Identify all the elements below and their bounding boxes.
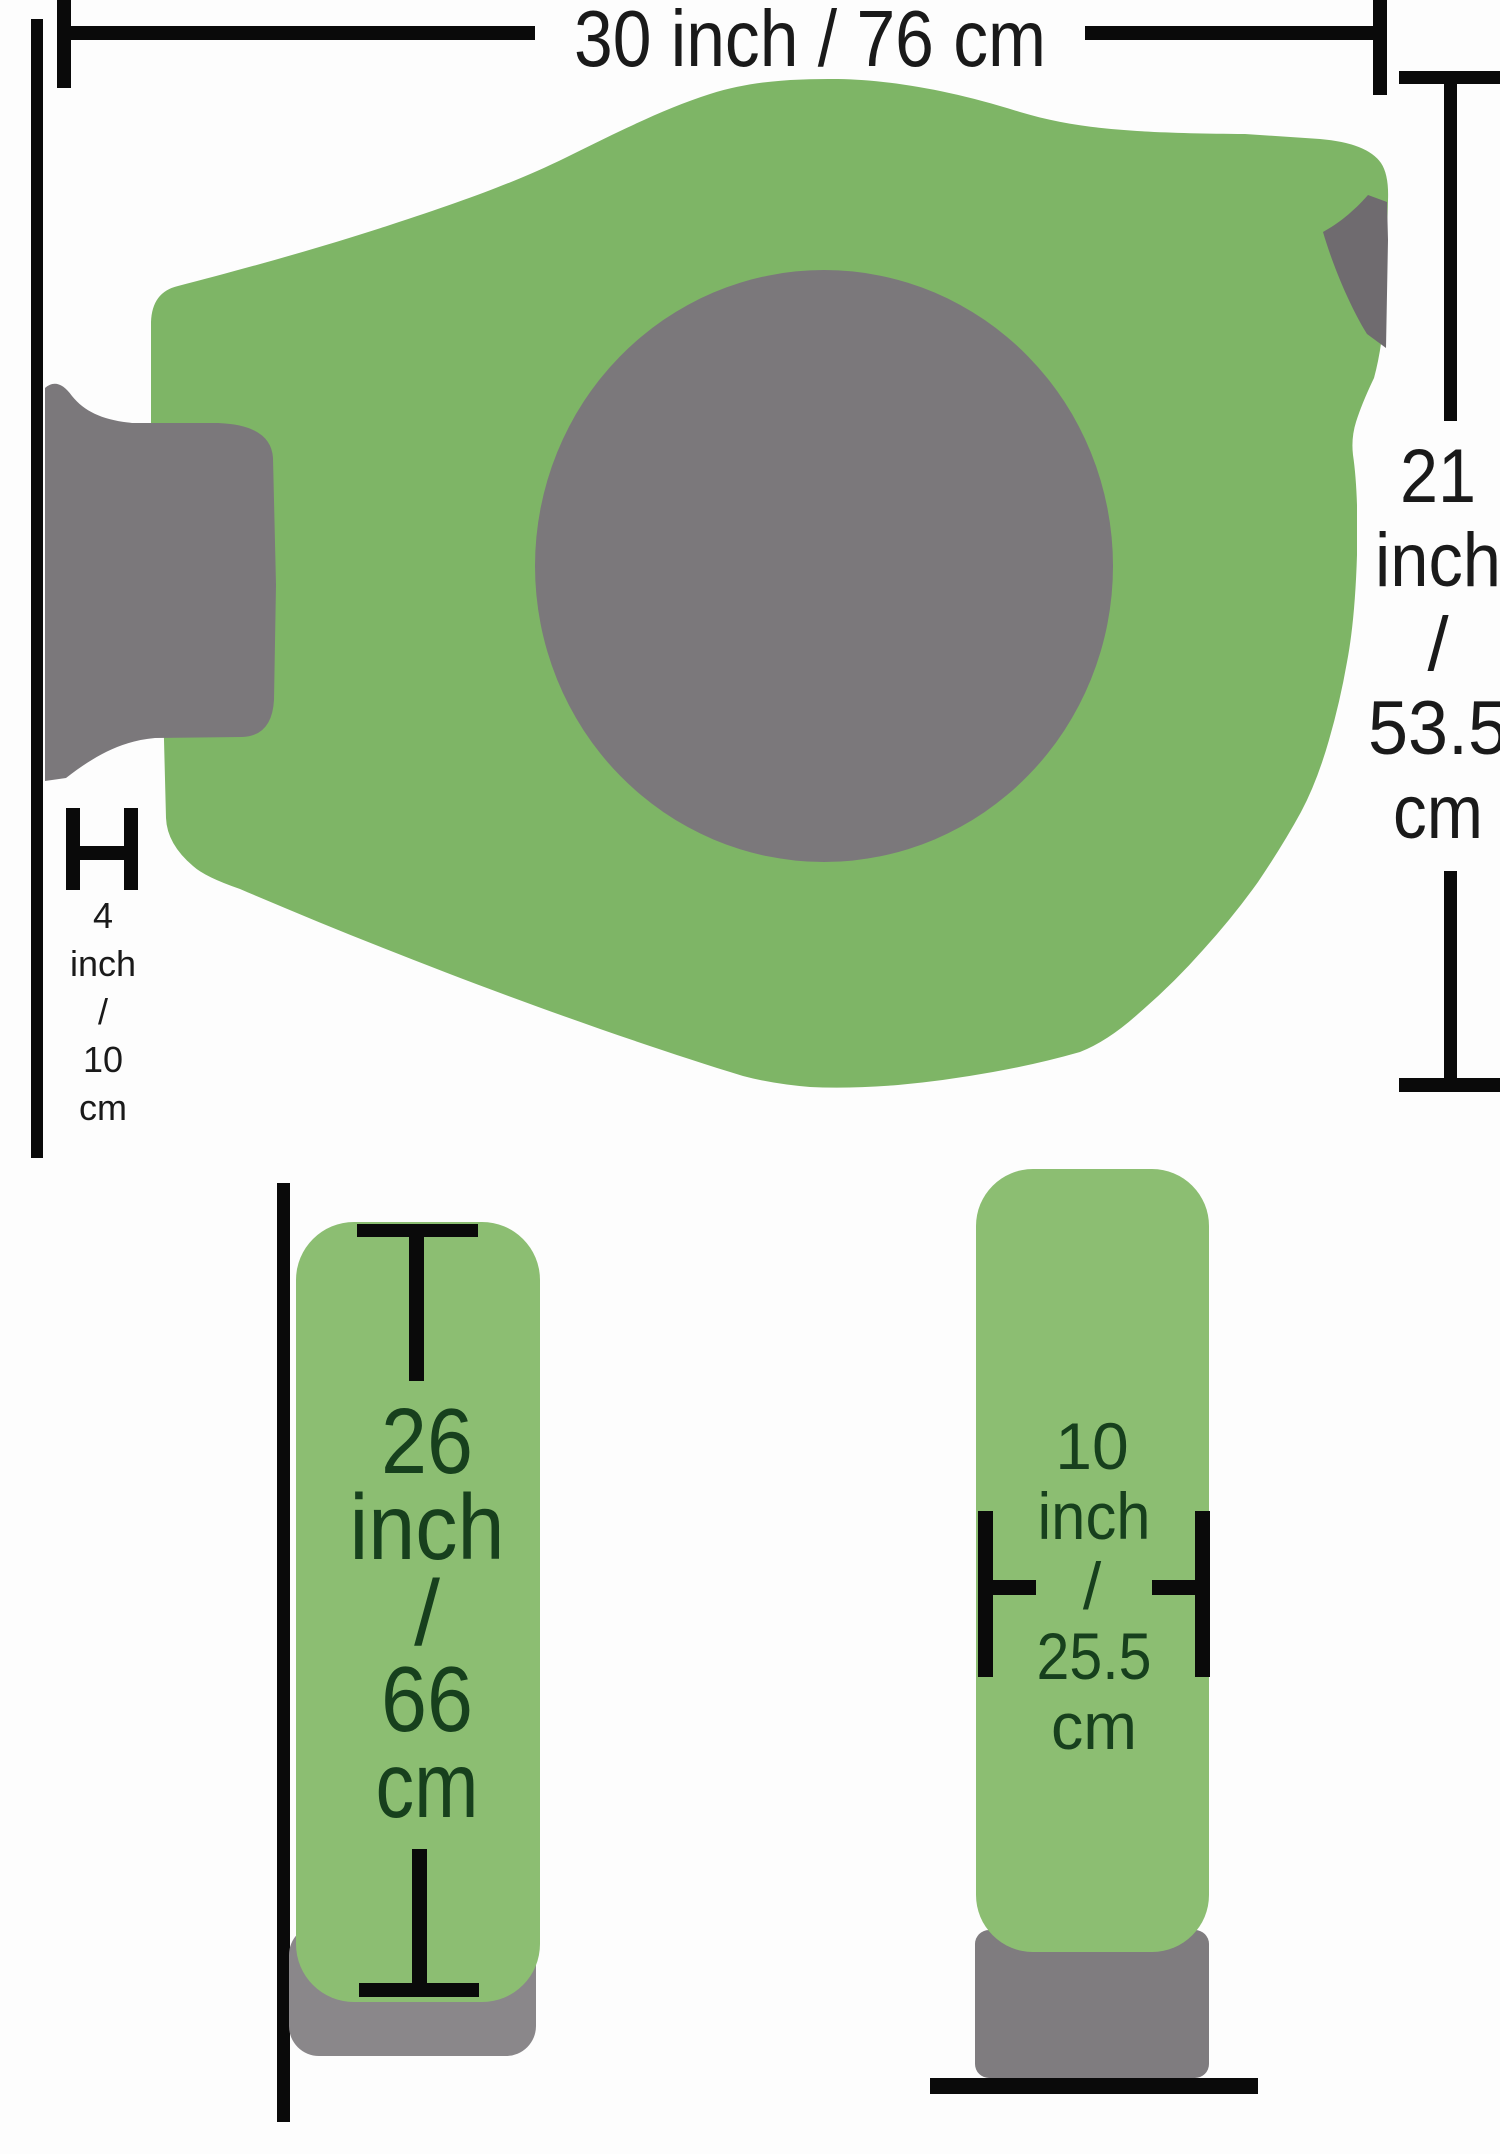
svg-text:/: / bbox=[1427, 602, 1449, 687]
svg-text:/: / bbox=[98, 991, 108, 1032]
svg-text:inch: inch bbox=[1375, 518, 1500, 603]
svg-text:21: 21 bbox=[1400, 434, 1476, 519]
svg-text:10: 10 bbox=[1055, 1409, 1128, 1483]
svg-text:inch: inch bbox=[1038, 1479, 1151, 1553]
svg-text:cm: cm bbox=[376, 1733, 479, 1837]
svg-text:cm: cm bbox=[79, 1087, 127, 1128]
svg-text:inch: inch bbox=[70, 943, 136, 984]
svg-text:/: / bbox=[1083, 1549, 1102, 1623]
svg-text:cm: cm bbox=[1393, 770, 1483, 855]
svg-text:cm: cm bbox=[1051, 1689, 1137, 1763]
svg-text:4: 4 bbox=[93, 895, 113, 936]
svg-text:10: 10 bbox=[83, 1039, 123, 1080]
svg-text:53.5: 53.5 bbox=[1368, 686, 1500, 771]
svg-text:30 inch / 76 cm: 30 inch / 76 cm bbox=[574, 0, 1046, 83]
svg-text:25.5: 25.5 bbox=[1037, 1619, 1152, 1693]
